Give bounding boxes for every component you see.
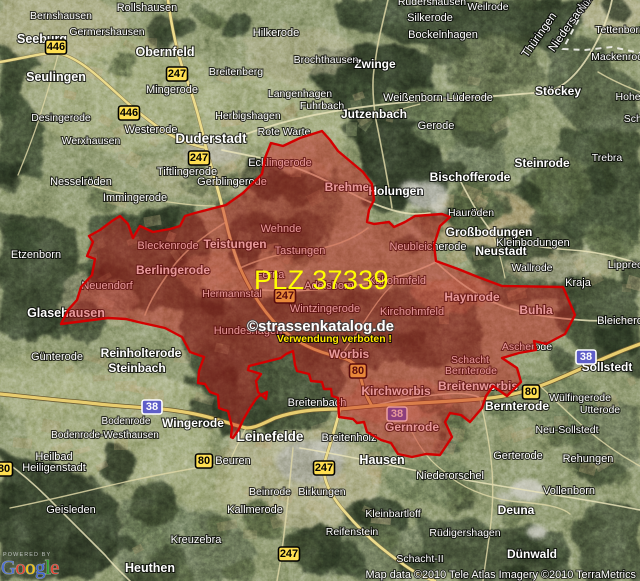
svg-text:Immingerode: Immingerode [103,192,167,204]
svg-text:Seulingen: Seulingen [26,70,86,84]
svg-text:Fuhrbach: Fuhrbach [300,100,345,112]
svg-text:Duderstadt: Duderstadt [175,131,247,146]
svg-text:Silkerode: Silkerode [407,12,453,24]
svg-text:Wallrode: Wallrode [511,262,552,274]
svg-text:Gerterode: Gerterode [493,450,543,462]
svg-text:Jutzenbach: Jutzenbach [341,107,407,121]
svg-text:Mingerode: Mingerode [146,84,198,96]
svg-text:Hauröden: Hauröden [448,207,494,219]
svg-text:Hohen: Hohen [616,91,640,103]
svg-text:Rüdershausen: Rüdershausen [398,0,466,8]
svg-text:Heiligenstadt: Heiligenstadt [22,462,86,474]
svg-text:Gerode: Gerode [418,120,455,132]
svg-text:80: 80 [198,455,210,467]
svg-text:Breitenberg: Breitenberg [209,66,263,78]
svg-text:38: 38 [580,351,592,363]
svg-text:247: 247 [168,68,186,80]
svg-text:247: 247 [315,462,333,474]
svg-text:Deuna: Deuna [498,503,535,517]
svg-text:Bodenrode-Westhausen: Bodenrode-Westhausen [51,430,159,441]
svg-text:Holungen: Holungen [368,184,423,198]
svg-text:Geisleden: Geisleden [46,504,96,516]
svg-text:Steinrode: Steinrode [514,156,570,170]
svg-text:Leinefelde: Leinefelde [237,429,304,444]
svg-text:Tettenborn: Tettenborn [595,24,640,36]
svg-text:Reifenstein: Reifenstein [326,526,379,538]
svg-text:Kleinbodungen: Kleinbodungen [496,237,569,249]
svg-text:Vollenborn: Vollenborn [543,485,595,497]
svg-text:Mackenrode: Mackenrode [591,51,640,63]
svg-text:Herbigshagen: Herbigshagen [215,110,281,122]
svg-text:80: 80 [0,463,10,475]
svg-text:247: 247 [190,152,208,164]
svg-text:Bischofferode: Bischofferode [430,170,511,184]
svg-text:Brochthausen: Brochthausen [294,54,359,66]
svg-text:Wingerode: Wingerode [162,416,224,430]
svg-text:Niederorschel: Niederorschel [416,470,484,482]
svg-text:Stöckey: Stöckey [535,84,581,98]
svg-text:Utterode: Utterode [580,404,620,416]
svg-text:Steinbach: Steinbach [108,361,165,375]
svg-text:©strassenkatalog.de: ©strassenkatalog.de [247,318,394,335]
svg-text:Reinholterode: Reinholterode [101,346,182,360]
svg-text:PLZ 37339: PLZ 37339 [254,265,389,295]
svg-text:Bernshausen: Bernshausen [30,10,92,22]
svg-text:Schi: Schi [624,113,640,125]
svg-text:446: 446 [47,41,65,53]
svg-text:Rüdigershagen: Rüdigershagen [429,527,500,539]
svg-text:Weißenborn-Lüderode: Weißenborn-Lüderode [383,92,493,104]
svg-text:Westerode: Westerode [125,124,178,136]
svg-text:Beuren: Beuren [215,455,250,467]
svg-text:Etzenborn: Etzenborn [11,249,61,261]
svg-text:Germershausen: Germershausen [69,26,144,38]
svg-text:Bleichero: Bleichero [597,315,640,327]
svg-text:Kraja: Kraja [565,277,592,289]
svg-text:Google: Google [1,557,59,579]
svg-text:Kleinbartloff: Kleinbartloff [365,508,420,520]
svg-text:Trebra: Trebra [592,152,623,164]
svg-text:Bernterode: Bernterode [485,399,549,413]
svg-text:Beinrode: Beinrode [249,486,291,498]
svg-text:Dünwald: Dünwald [507,547,557,561]
svg-text:Birkungen: Birkungen [298,486,345,498]
svg-text:Schacht-II: Schacht-II [396,553,443,565]
svg-text:Bockelnhagen: Bockelnhagen [408,29,478,41]
svg-text:Kallmerode: Kallmerode [227,504,283,516]
svg-text:Desingerode: Desingerode [31,112,91,124]
svg-text:Günterode: Günterode [31,351,83,363]
svg-text:Zwinge: Zwinge [354,57,396,71]
svg-text:Neu-Sollstedt: Neu-Sollstedt [535,424,598,436]
svg-text:Weilrode: Weilrode [467,1,508,13]
svg-text:Hilkerode: Hilkerode [253,27,299,39]
svg-text:Werxhausen: Werxhausen [62,135,121,147]
svg-text:Rehungen: Rehungen [563,453,614,465]
svg-text:Bodenrode: Bodenrode [102,416,151,427]
svg-text:446: 446 [120,107,138,119]
svg-text:Heuthen: Heuthen [125,561,175,575]
svg-text:80: 80 [525,386,537,398]
svg-text:Obernfeld: Obernfeld [135,45,194,59]
svg-text:Lipprech: Lipprech [608,259,640,271]
svg-text:Map data ©2010 Tele Atlas Ima: Map data ©2010 Tele Atlas Imagery ©2010 … [365,569,636,581]
svg-text:Verwendung verboten !: Verwendung verboten ! [277,334,392,345]
svg-text:Nesselröden: Nesselröden [50,176,112,188]
svg-text:Kreuzebra: Kreuzebra [171,534,223,546]
svg-text:Wülfingerode: Wülfingerode [549,392,611,404]
svg-text:Rollshausen: Rollshausen [117,2,178,14]
svg-text:247: 247 [280,548,298,560]
svg-text:38: 38 [146,401,158,413]
svg-text:Langenhagen: Langenhagen [268,88,332,100]
